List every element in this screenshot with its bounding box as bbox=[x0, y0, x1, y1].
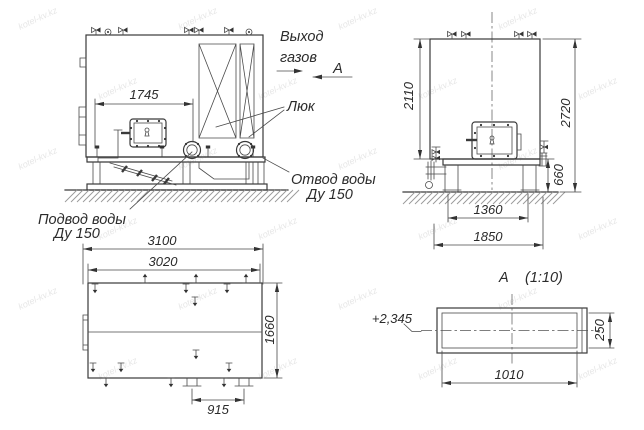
drain-hook bbox=[426, 182, 433, 189]
dim-2110-label: 2110 bbox=[401, 81, 416, 111]
watermark-text: kotel-kv.kz bbox=[417, 75, 460, 102]
vent-icon bbox=[224, 284, 230, 293]
water-outlet-leader bbox=[263, 158, 289, 172]
dim-3020-label: 3020 bbox=[149, 254, 179, 269]
vent-icon bbox=[221, 378, 227, 387]
watermark-text: kotel-kv.kz bbox=[257, 215, 300, 242]
vent-icon bbox=[168, 378, 174, 387]
watermark-text: kotel-kv.kz bbox=[17, 145, 60, 172]
bottom-fittings bbox=[95, 146, 255, 158]
lug-icon bbox=[107, 31, 109, 33]
dim-2720-label: 2720 bbox=[558, 98, 573, 129]
safety-valve-icons bbox=[92, 27, 234, 35]
boiler-body-outline bbox=[430, 39, 540, 159]
section-scale: (1:10) bbox=[525, 270, 563, 286]
watermark-text: kotel-kv.kz bbox=[577, 215, 620, 242]
lock-icon bbox=[145, 132, 149, 136]
vent-icon bbox=[193, 350, 199, 359]
left-nozzle bbox=[83, 315, 88, 350]
watermark-text: kotel-kv.kz bbox=[337, 145, 380, 172]
ladder bbox=[110, 163, 176, 185]
dimension-915: 915 bbox=[192, 389, 244, 417]
inlet-flange-assembly bbox=[426, 147, 447, 189]
valve-icon bbox=[528, 31, 537, 39]
vent-icon bbox=[90, 363, 96, 372]
section-view-marker: A bbox=[313, 61, 352, 79]
front-view: 1745 bbox=[65, 27, 299, 202]
water-outlet-label: Ду 150 bbox=[305, 187, 353, 203]
support-stubs bbox=[183, 378, 253, 386]
water-inlet-label: Ду 150 bbox=[52, 226, 100, 242]
gas-outlet-label: газов bbox=[280, 50, 317, 66]
vent-icon bbox=[92, 284, 98, 293]
section-a-view: A (1:10) +2,345 1010 250 bbox=[372, 270, 614, 387]
watermark-text: kotel-kv.kz bbox=[497, 145, 540, 172]
vent-icon bbox=[142, 274, 148, 283]
dim-250-label: 250 bbox=[592, 318, 607, 341]
vent-icon bbox=[226, 363, 232, 372]
lock-icon bbox=[145, 128, 149, 132]
manhole-bolts bbox=[474, 124, 509, 157]
watermark-text: kotel-kv.kz bbox=[177, 5, 220, 32]
watermark-text: kotel-kv.kz bbox=[337, 285, 380, 312]
gas-flow-arrow-icon bbox=[277, 69, 303, 74]
side-view: 2110 2720 660 1360 1850 bbox=[401, 12, 581, 249]
drawing-canvas: kotel-kv.kz kotel-kv.kz kotel-kv.kz kote… bbox=[0, 0, 644, 430]
watermark-text: kotel-kv.kz bbox=[337, 5, 380, 32]
dimension-660: 660 bbox=[541, 159, 566, 192]
valve-icon bbox=[448, 31, 457, 39]
dimension-1010: 1010 bbox=[442, 351, 577, 387]
manhole-cover bbox=[477, 127, 512, 154]
water-outlet-label: Отвод воды bbox=[291, 172, 376, 188]
valve-icon bbox=[119, 27, 128, 35]
valve-icon bbox=[195, 27, 204, 35]
left-nozzle bbox=[79, 58, 86, 145]
dim-1850-label: 1850 bbox=[474, 229, 504, 244]
watermark-text: kotel-kv.kz bbox=[577, 355, 620, 382]
hatch-label: Люк bbox=[286, 99, 316, 115]
valve-icon bbox=[462, 31, 471, 39]
dimension-1360: 1360 bbox=[448, 194, 528, 222]
dim-1010-label: 1010 bbox=[495, 367, 525, 382]
valve-icon bbox=[185, 27, 194, 35]
watermark-text: kotel-kv.kz bbox=[177, 285, 220, 312]
dim-1360-label: 1360 bbox=[474, 202, 504, 217]
technical-drawing: kotel-kv.kz kotel-kv.kz kotel-kv.kz kote… bbox=[0, 0, 644, 430]
water-outlet-flange bbox=[237, 142, 254, 159]
watermark-text: kotel-kv.kz bbox=[17, 285, 60, 312]
vent-icon bbox=[183, 284, 189, 293]
valve-icon bbox=[515, 31, 524, 39]
dimension-250: 250 bbox=[589, 313, 614, 348]
support-frame bbox=[443, 159, 540, 192]
section-marker-label: A bbox=[332, 61, 343, 77]
watermark-text: kotel-kv.kz bbox=[417, 355, 460, 382]
lug-icon bbox=[248, 31, 250, 33]
vent-icon bbox=[193, 274, 199, 283]
dim-1660-label: 1660 bbox=[262, 315, 277, 345]
plan-view: 3100 3020 1660 915 bbox=[83, 233, 282, 417]
dim-3100-label: 3100 bbox=[148, 233, 178, 248]
annotations: Выход газов A Люк Отвод воды Ду 150 Подв… bbox=[38, 29, 376, 242]
manhole-door bbox=[466, 122, 521, 159]
vent-icon bbox=[243, 274, 249, 283]
manhole-door bbox=[121, 119, 166, 147]
gas-outlet-label: Выход bbox=[280, 29, 324, 45]
valve-icon bbox=[225, 27, 234, 35]
elevation-label: +2,345 bbox=[372, 311, 413, 326]
dim-915-label: 915 bbox=[207, 402, 229, 417]
watermark-text: kotel-kv.kz bbox=[17, 5, 60, 32]
support-frame bbox=[87, 157, 267, 190]
dim-1745-label: 1745 bbox=[130, 87, 160, 102]
watermark-text: kotel-kv.kz bbox=[497, 5, 540, 32]
dim-660-label: 660 bbox=[551, 163, 566, 185]
dimension-3020: 3020 bbox=[88, 254, 260, 282]
manhole-frame bbox=[472, 122, 517, 159]
section-title: A bbox=[498, 270, 509, 286]
ground-hatch bbox=[65, 190, 299, 202]
elevation-mark: +2,345 bbox=[372, 311, 421, 332]
watermark-text: kotel-kv.kz bbox=[577, 75, 620, 102]
valve-icon bbox=[92, 27, 101, 35]
